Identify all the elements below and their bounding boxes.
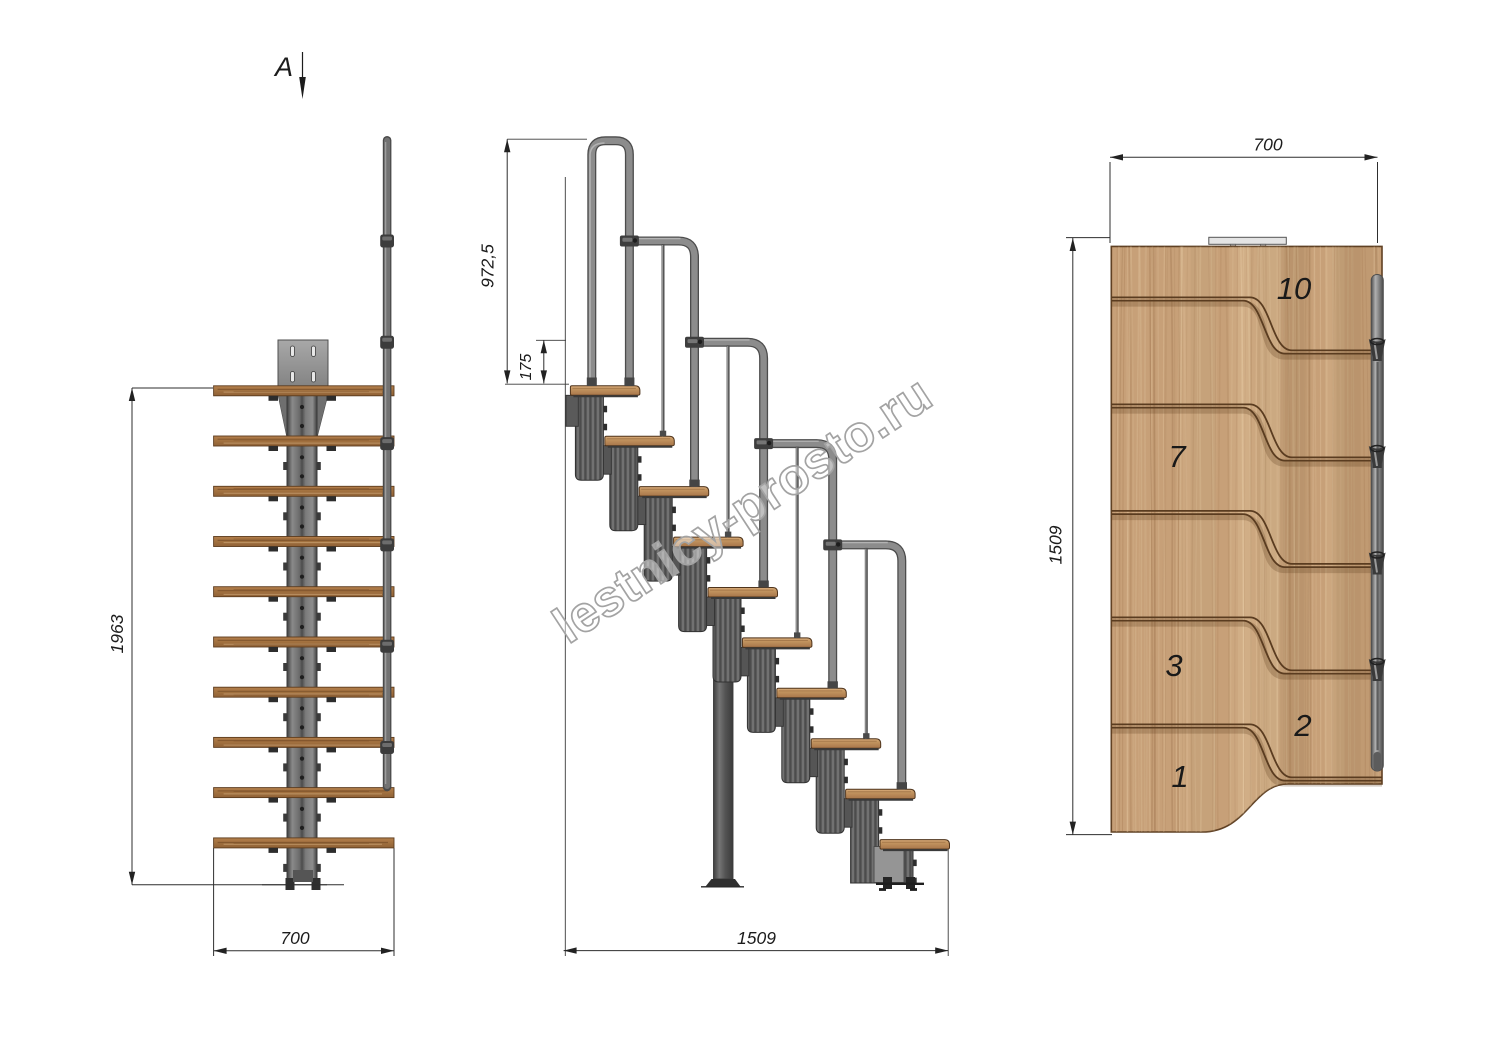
svg-text:10: 10	[1277, 271, 1311, 306]
svg-text:7: 7	[1168, 439, 1187, 474]
svg-text:2: 2	[1293, 708, 1311, 743]
svg-text:1509: 1509	[737, 928, 776, 948]
svg-text:972,5: 972,5	[478, 244, 498, 288]
svg-text:1: 1	[1171, 759, 1188, 794]
svg-text:1963: 1963	[107, 614, 127, 653]
svg-text:3: 3	[1165, 648, 1182, 683]
svg-text:700: 700	[1253, 135, 1282, 155]
svg-text:1509: 1509	[1046, 525, 1066, 564]
svg-text:700: 700	[280, 928, 309, 948]
svg-text:A: A	[273, 52, 293, 82]
svg-text:175: 175	[518, 354, 535, 381]
